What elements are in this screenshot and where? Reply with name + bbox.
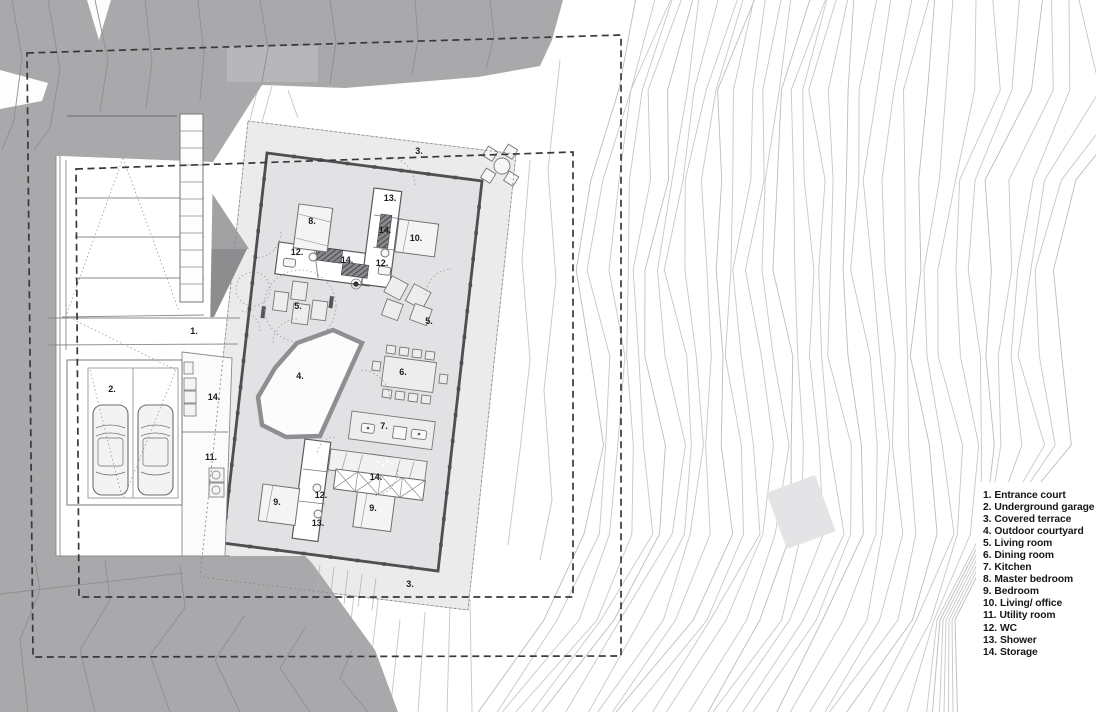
legend-item: 13.Shower [983, 635, 1094, 647]
legend-item: 7.Kitchen [983, 562, 1094, 574]
site-plan-canvas: 1. 2. 3. 3. 4. 5. 5. 6. 7. 8. 9. 9. 10. … [0, 0, 1096, 712]
legend-item: 2.Underground garage [983, 502, 1094, 514]
legend-item: 12.WC [983, 623, 1094, 635]
legend-item: 6.Dining room [983, 550, 1094, 562]
site-plan-drawing [0, 0, 1096, 712]
legend-item: 9.Bedroom [983, 586, 1094, 598]
garage [67, 360, 182, 505]
legend-item: 5.Living room [983, 538, 1094, 550]
legend-item: 11.Utility room [983, 610, 1094, 622]
stairs [180, 114, 203, 302]
house-floorplan [223, 153, 482, 571]
legend-item: 3.Covered terrace [983, 514, 1094, 526]
legend: 1.Entrance court 2.Underground garage 3.… [983, 490, 1094, 659]
legend-item: 14.Storage [983, 647, 1094, 659]
slope-pad [766, 475, 835, 549]
legend-item: 8.Master bedroom [983, 574, 1094, 586]
legend-item: 1.Entrance court [983, 490, 1094, 502]
legend-item: 4.Outdoor courtyard [983, 526, 1094, 538]
legend-item: 10.Living/ office [983, 598, 1094, 610]
